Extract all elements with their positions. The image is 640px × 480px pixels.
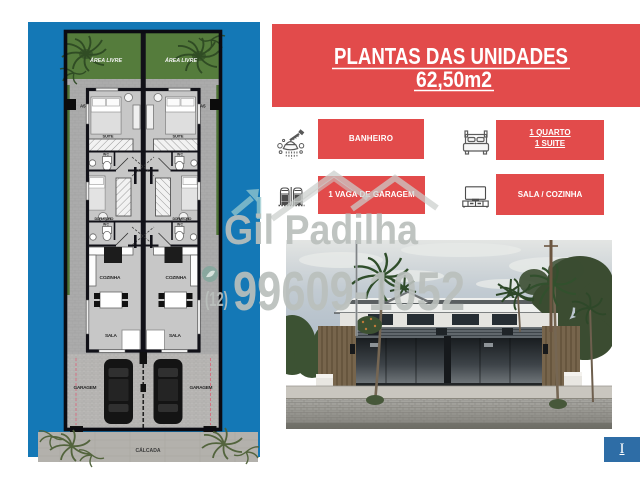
svg-text:Gil Padilha: Gil Padilha [224,206,419,253]
svg-text:CÁLCADA: CÁLCADA [136,447,161,454]
svg-text:WC: WC [103,152,110,156]
svg-text:A5: A5 [80,104,86,109]
svg-text:GARAGEM: GARAGEM [74,385,97,391]
svg-text:ÁREA LIVRE: ÁREA LIVRE [89,57,123,64]
svg-text:SUITE: SUITE [173,134,184,139]
svg-text:PLANTAS DAS UNIDADES: PLANTAS DAS UNIDADES [334,43,568,69]
svg-text:COZINHA: COZINHA [100,275,122,281]
svg-text:SALA: SALA [169,333,182,339]
svg-text:GARAGEM: GARAGEM [190,385,213,391]
svg-text:WC: WC [103,222,110,226]
svg-text:A5: A5 [200,104,206,109]
svg-text:(12): (12) [205,289,228,311]
svg-text:ÁREA LIVRE: ÁREA LIVRE [164,57,198,64]
svg-text:SALA: SALA [105,333,118,339]
svg-text:DORMITORIO: DORMITORIO [95,217,114,221]
svg-text:SUITE: SUITE [103,134,114,139]
svg-text:99609-1052: 99609-1052 [233,260,465,322]
svg-text:62,50m2: 62,50m2 [416,67,492,92]
